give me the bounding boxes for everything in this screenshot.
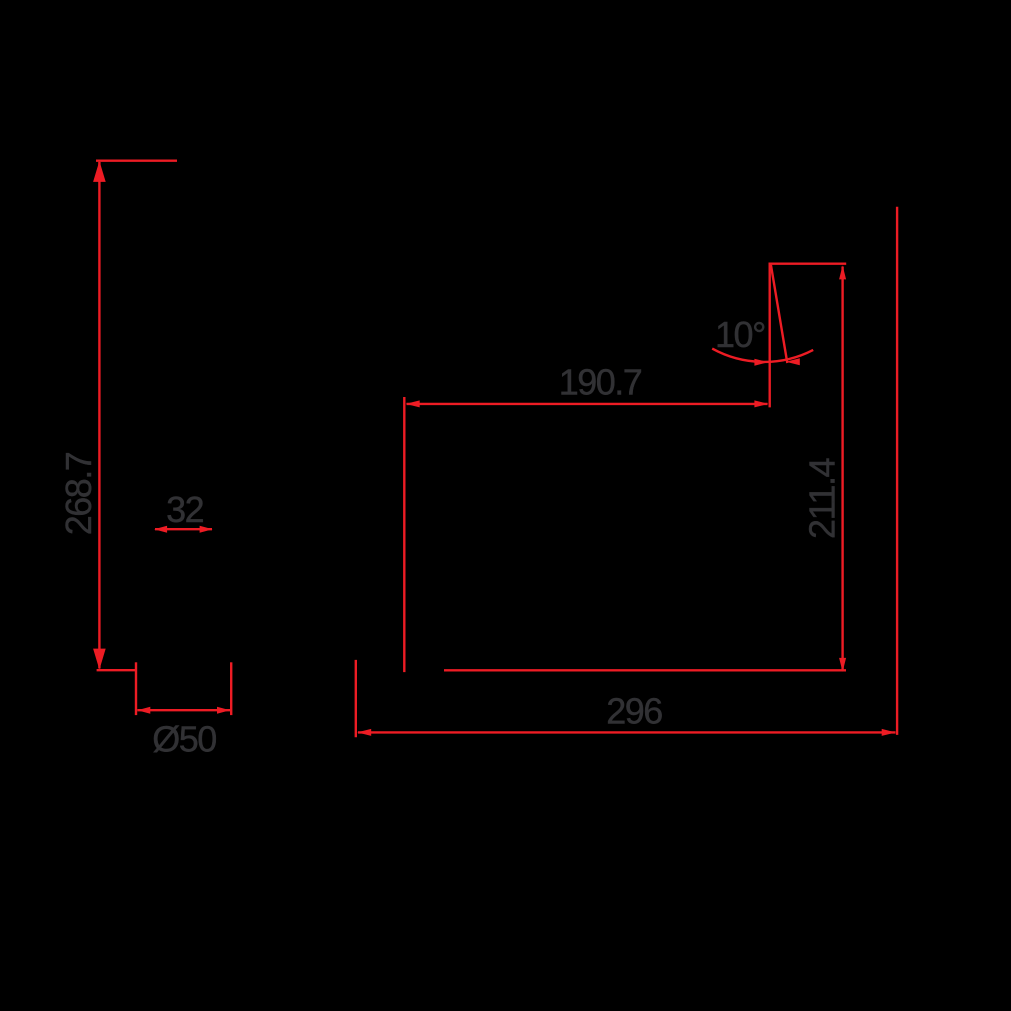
svg-text:10°: 10°	[715, 314, 765, 355]
svg-text:296: 296	[606, 690, 662, 731]
svg-text:Ø50: Ø50	[152, 719, 216, 760]
svg-text:268.7: 268.7	[58, 452, 99, 535]
svg-text:190.7: 190.7	[559, 362, 642, 403]
svg-text:32: 32	[166, 489, 204, 530]
svg-text:211.4: 211.4	[801, 459, 842, 539]
